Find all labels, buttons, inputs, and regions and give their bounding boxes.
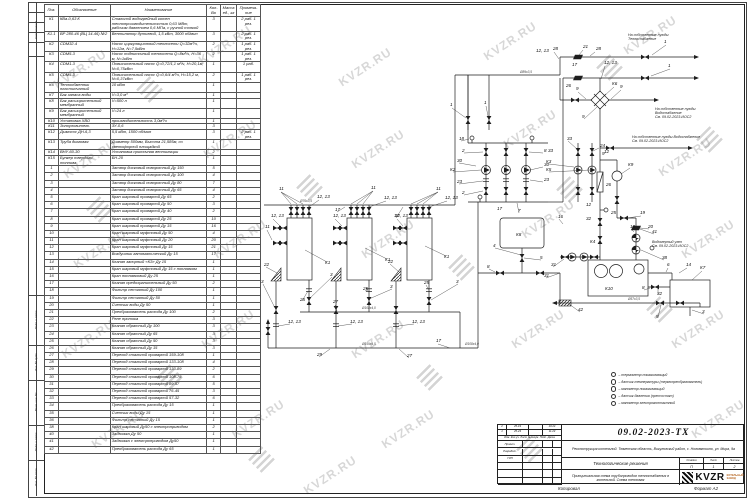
spec-cell <box>58 389 110 396</box>
spec-cell <box>221 302 237 309</box>
spec-cell <box>237 108 261 118</box>
pump-arrow-icon <box>576 168 581 173</box>
spec-cell <box>58 281 110 288</box>
spec-cell <box>237 98 261 108</box>
spec-header-cell: Поз. <box>45 5 59 17</box>
leader-line <box>281 192 297 204</box>
leader-line <box>357 191 373 204</box>
schematic-note: На собственные нуждыТеплоснабжение <box>628 33 669 41</box>
callout-label: 3 <box>330 272 333 277</box>
spec-cell <box>237 424 261 431</box>
leader-line <box>549 170 590 172</box>
spec-cell <box>221 360 237 367</box>
leader-line <box>426 285 429 290</box>
callout-label: 2 <box>461 148 465 153</box>
valve-icon <box>676 301 684 306</box>
spec-cell <box>221 252 237 259</box>
callout-label: К6 <box>612 81 618 86</box>
callout-label: 1 <box>664 39 667 44</box>
spec-row: 21Преобразователь расхода Ду 1002 <box>45 309 261 316</box>
role-empty-cell <box>542 478 552 485</box>
leader-line <box>365 248 387 259</box>
valve-icon <box>571 98 579 103</box>
callout-label: 16 <box>558 214 564 219</box>
spec-cell <box>221 156 237 166</box>
callout-label: 8 <box>642 285 645 290</box>
spec-cell <box>221 173 237 180</box>
callout-label: 25 <box>362 286 369 291</box>
spec-cell: 2 <box>207 209 221 216</box>
leader-line <box>666 268 668 272</box>
spec-cell <box>58 295 110 302</box>
kvzr-logo-text: KVZR <box>695 472 724 483</box>
spec-cell <box>221 353 237 360</box>
expansion-vessel-K9 <box>612 171 622 181</box>
legend-item-label: – манометр показывающий <box>618 387 664 391</box>
role-label <box>498 470 522 477</box>
spec-cell <box>58 331 110 338</box>
valve-icon <box>415 207 420 215</box>
spec-cell: 2 <box>207 72 221 82</box>
spec-cell: К15 <box>45 156 59 166</box>
flow-arrow-icon <box>266 319 270 324</box>
role-empty-cell <box>522 470 542 477</box>
spec-cell <box>221 31 237 41</box>
spec-row: 34Преобразователь расхода Ду 151 <box>45 403 261 410</box>
leader-line <box>417 192 438 204</box>
spec-cell <box>237 367 261 374</box>
leader-line <box>425 246 446 256</box>
role-label: ГИП <box>498 456 522 463</box>
valve-icon <box>349 207 354 215</box>
spec-cell <box>58 360 110 367</box>
leader-line <box>464 191 483 195</box>
spec-cell <box>221 202 237 209</box>
valve-icon <box>656 301 664 306</box>
role-empty-cell <box>542 470 552 477</box>
spec-cell: К1 <box>45 17 59 32</box>
drawing-sheet: СогласованоПодп. и датаИнв. № дубл.Взам.… <box>0 0 750 500</box>
spec-cell: 3 <box>207 324 221 331</box>
gauge-icon <box>530 136 534 140</box>
spec-cell <box>237 331 261 338</box>
spec-cell: 7 <box>45 209 59 216</box>
spec-cell <box>237 295 261 302</box>
callout-label: 9 <box>602 151 605 156</box>
spec-cell: 1 <box>207 439 221 446</box>
leader-line <box>641 250 664 260</box>
schematic-note: На собственные нужды ВодоснабжениеСм. 09… <box>632 135 700 143</box>
spec-cell <box>237 156 261 166</box>
boiler-K1 <box>287 218 312 280</box>
leader-line <box>549 164 574 167</box>
spec-cell <box>237 173 261 180</box>
spec-cell <box>58 266 110 273</box>
callout-label: 12, 13 <box>536 48 549 53</box>
valve-icon <box>641 55 649 60</box>
schematic-note: На собственные нуждыВодоснабжениеСм. 09.… <box>655 107 696 119</box>
legend-item: – датчик давления (прессостат) <box>611 394 702 399</box>
water-meter-icon <box>559 300 571 306</box>
valve-icon <box>409 207 414 215</box>
leader-line <box>263 284 274 306</box>
spec-cell <box>58 374 110 381</box>
callout-label: 5 <box>540 255 543 260</box>
spec-cell: К6 <box>45 82 59 92</box>
spec-header-cell: Примеча- ние <box>237 5 261 17</box>
spec-cell: 3 <box>207 130 221 140</box>
spec-cell <box>58 223 110 230</box>
spec-cell: К2 <box>45 41 59 51</box>
callout-label: 18 <box>459 136 465 141</box>
spec-row: 38Кран шаровый Ду50 с электроприводом2 <box>45 424 261 431</box>
rev-num: 2 <box>498 425 506 428</box>
spec-cell <box>221 266 237 273</box>
spec-cell <box>221 230 237 237</box>
spec-cell: Задвижка с электроприводом Ду50 <box>110 439 206 446</box>
spec-row: К6Теплообменник пластинчатый10 кВт1 <box>45 82 261 92</box>
callout-label: 24 <box>599 143 606 148</box>
spec-cell <box>221 417 237 424</box>
spec-row: К5CDM5-3Повысительный насос Q=0,6/4 м³/ч… <box>45 72 261 82</box>
spec-cell <box>58 410 110 417</box>
kvzr-logo-subtext: КОТЕЛЬНЫЙЗАВОД <box>727 475 743 481</box>
spec-cell <box>237 389 261 396</box>
callout-label: 9 <box>620 84 623 89</box>
spec-cell <box>221 108 237 118</box>
spec-cell: 41 <box>45 439 59 446</box>
leader-line <box>652 45 666 55</box>
spec-cell <box>237 374 261 381</box>
pipe-dim-label: Ø108х4,0 <box>464 342 479 346</box>
fan-icon <box>391 268 401 281</box>
spec-cell <box>221 187 237 194</box>
format-label: Формат А2 <box>694 486 718 491</box>
leader-line <box>363 191 373 204</box>
leader-line <box>273 219 280 226</box>
callout-label: 12 <box>604 149 610 154</box>
valve-icon <box>274 306 279 314</box>
spec-cell <box>237 223 261 230</box>
callout-label: К7 <box>700 265 706 270</box>
callout-label: 3 <box>456 279 459 284</box>
role-empty-cell <box>552 456 561 463</box>
spec-cell <box>58 353 110 360</box>
spec-cell: К13 <box>45 140 59 150</box>
leader-line <box>309 277 332 299</box>
callout-label: 17 <box>436 338 442 343</box>
water-treatment-K10 <box>588 260 648 296</box>
leader-line <box>578 92 586 99</box>
valve-icon <box>524 148 529 156</box>
pump-arrow-icon <box>582 255 587 260</box>
spec-cell <box>237 281 261 288</box>
callout-label: 11 <box>279 186 284 191</box>
leader-line <box>267 230 272 240</box>
callout-label: 12, 13 <box>333 213 346 218</box>
leader-line <box>495 248 521 255</box>
spec-cell <box>58 345 110 352</box>
spec-cell <box>237 345 261 352</box>
role-empty-cell <box>522 456 542 463</box>
spec-cell: 1 <box>207 140 221 150</box>
spec-cell: К9 <box>45 108 59 118</box>
spec-cell <box>237 417 261 424</box>
leader-line <box>390 264 399 272</box>
spec-cell <box>58 367 110 374</box>
spec-cell <box>221 98 237 108</box>
leader-line <box>486 106 488 116</box>
callout-label: 3 <box>390 284 393 289</box>
spec-cell: 1 раб. <box>237 62 261 72</box>
valve-icon <box>421 207 426 215</box>
spec-row: 7Кран шаровый приварной Ду 402 <box>45 209 261 216</box>
valve-icon <box>590 255 598 260</box>
leader-line <box>644 288 650 290</box>
spec-cell <box>221 432 237 439</box>
spec-cell <box>237 187 261 194</box>
legend-item-label: – датчик давления (прессостат) <box>618 394 673 398</box>
spec-cell <box>221 324 237 331</box>
role-label: Проект. <box>498 441 522 448</box>
rev-date: 10.24 <box>543 425 561 428</box>
leader-line <box>530 180 543 182</box>
spec-cell <box>221 295 237 302</box>
spec-cell <box>237 82 261 92</box>
rev-doc: 25-19 <box>507 425 528 428</box>
spec-cell <box>58 173 110 180</box>
spec-cell <box>58 274 110 281</box>
valve-icon <box>427 297 432 305</box>
callout-label: 30 <box>457 158 463 163</box>
callout-label: К9 <box>628 162 634 167</box>
role-empty-cell <box>522 463 542 470</box>
spec-cell: Бак расширительный мембранный <box>58 108 110 118</box>
callout-label: 30 <box>544 162 550 167</box>
flow-arrow-icon <box>694 76 699 80</box>
spec-cell <box>58 180 110 187</box>
valve-icon <box>487 116 492 124</box>
legend-item: – манометр электроконтактный <box>611 401 702 406</box>
spec-cell <box>237 140 261 150</box>
spec-cell <box>237 238 261 245</box>
spec-cell: К5 <box>45 72 59 82</box>
boiler-K1 <box>407 218 432 280</box>
callout-label: 41 <box>652 229 658 234</box>
role-empty-cell <box>522 478 542 485</box>
spec-cell: 1 <box>207 82 221 92</box>
spec-cell <box>221 439 237 446</box>
role-empty-cell <box>522 441 542 448</box>
valve-icon <box>484 148 489 156</box>
spec-cell <box>237 245 261 252</box>
instrument-legend: – термометр показывающий– датчик темпера… <box>611 372 702 408</box>
spec-cell: Насос циркуляционный теплосети Q=32м³/ч,… <box>110 41 206 51</box>
callout-label: 12, 13 <box>288 319 301 324</box>
spec-cell <box>58 238 110 245</box>
spec-cell <box>58 396 110 403</box>
callout-label: 14 <box>686 262 692 267</box>
leader-line <box>579 50 583 55</box>
spec-cell: 3 <box>207 31 221 41</box>
leader-line <box>305 250 327 262</box>
callout-label: 5 <box>656 314 659 319</box>
company-logo: KVZR КОТЕЛЬНЫЙЗАВОД <box>680 470 745 485</box>
spec-cell <box>221 62 237 72</box>
spec-cell: V=24 л <box>110 108 206 118</box>
spec-cell <box>221 166 237 173</box>
filter-tank-icon <box>610 265 623 278</box>
spec-cell <box>221 396 237 403</box>
spec-cell <box>237 202 261 209</box>
specification-table: Поз.ОбозначениеНаименованиеКол-ВоМасса е… <box>44 4 261 454</box>
spec-cell <box>237 446 261 453</box>
callout-label: 32 <box>586 216 592 221</box>
spec-cell <box>237 180 261 187</box>
spec-header-cell: Кол-Во <box>207 5 221 17</box>
leader-line <box>568 141 577 149</box>
spec-cell <box>237 439 261 446</box>
valve-icon <box>504 187 509 195</box>
spec-cell <box>221 194 237 201</box>
leader-line <box>411 192 438 204</box>
leader-line <box>464 152 483 153</box>
leader-line <box>397 219 403 226</box>
spec-row: К13Труба дымоваяДиаметр 500мм, Высота 21… <box>45 140 261 150</box>
callout-label: 7 <box>518 208 521 213</box>
spec-cell: К3 <box>45 52 59 62</box>
copied-label: Копировал <box>558 486 580 491</box>
callout-label: 11 <box>436 186 441 191</box>
spec-cell: КВа-0,63 К <box>58 17 110 32</box>
flow-arrow-icon <box>694 55 699 59</box>
callout-label: 25 <box>423 280 430 285</box>
callout-label: 33 <box>567 136 573 141</box>
valve-icon <box>651 285 659 290</box>
spec-cell <box>237 194 261 201</box>
spec-cell: 1 раб. 1 рез. <box>237 72 261 82</box>
callout-label: 12, 13 <box>604 60 617 65</box>
role-empty-cell <box>552 449 561 456</box>
callout-label: 19 <box>640 210 646 215</box>
spec-cell: 10 кВт <box>110 82 206 92</box>
document-number: 09.02-2023-ТХ <box>561 425 745 441</box>
spec-cell: CDM1-3 <box>58 62 110 72</box>
spec-cell <box>221 82 237 92</box>
spec-cell <box>221 180 237 187</box>
valve-icon <box>504 148 509 156</box>
rev-date: 11.23 <box>543 430 561 433</box>
role-empty-cell <box>522 449 542 456</box>
leader-line <box>281 192 291 204</box>
role-empty-cell <box>542 456 552 463</box>
callout-label: 26 <box>605 182 612 187</box>
fan-icon <box>271 268 281 281</box>
spec-cell: Дымосос ДН-6,3 <box>58 130 110 140</box>
spec-cell <box>221 381 237 388</box>
spec-cell <box>58 216 110 223</box>
spec-cell: Труба дымовая <box>58 140 110 150</box>
role-label <box>498 463 522 470</box>
spec-cell: 1 <box>207 156 221 166</box>
valve-icon <box>289 207 294 215</box>
leader-line <box>554 52 559 59</box>
spec-cell <box>58 381 110 388</box>
project-name: Реконструкция котельной. Тюменская облас… <box>561 441 745 458</box>
valve-icon <box>576 187 581 195</box>
schematic-note: Водомерный узелСм. 09.02-2023-ИОС2 <box>652 240 688 248</box>
spec-cell <box>237 410 261 417</box>
callout-label: 25 <box>299 297 306 302</box>
callout-label: 27 <box>406 353 413 358</box>
callout-label: 28 <box>552 46 559 51</box>
callout-label: 12, 13 <box>445 195 458 200</box>
spec-cell <box>221 403 237 410</box>
spec-cell <box>237 353 261 360</box>
spec-row: К1.1ВР 280-46 (ВЦ 14-46) №2Вентилятор ду… <box>45 31 261 41</box>
callout-label: 3 <box>702 309 705 314</box>
spec-cell <box>221 288 237 295</box>
callout-label: 12, 13 <box>395 213 408 218</box>
instrument-circle-icon <box>611 394 616 399</box>
spec-row: К1КВа-0,63 КСтальной водогрейный котел т… <box>45 17 261 32</box>
spec-cell: CDM32-4 <box>58 41 110 51</box>
spec-cell <box>58 302 110 309</box>
spec-cell: Повысительный насос Q=0,72/1,1 м³/ч, Н=2… <box>110 62 206 72</box>
valve-icon <box>598 236 603 244</box>
callout-label: 3 <box>261 279 264 284</box>
spec-cell <box>237 338 261 345</box>
spec-header-cell: Обозначение <box>58 5 110 17</box>
spec-cell: БН-20 <box>110 156 206 166</box>
spec-cell <box>221 223 237 230</box>
callout-label: 22 <box>263 262 270 267</box>
spec-cell <box>237 288 261 295</box>
callout-label: 9 <box>576 86 579 91</box>
leader-line <box>489 269 495 272</box>
spec-row: К9Бак расширительный мембранныйV=24 л1 <box>45 108 261 118</box>
spec-cell: Бункер твердого топлива <box>58 156 110 166</box>
legend-item-label: – термометр показывающий <box>618 373 667 377</box>
spec-row: 42Преобразователь расхода Ду 651 <box>45 446 261 453</box>
pump-arrow-icon <box>484 167 490 172</box>
callout-label: К5 <box>546 167 552 172</box>
valve-icon <box>484 187 489 195</box>
leader-line <box>529 152 543 153</box>
leader-line <box>351 191 373 204</box>
spec-cell <box>58 288 110 295</box>
callout-label: 38 <box>662 255 668 260</box>
role-empty-cell <box>552 441 561 448</box>
spec-cell: 2 раб. 1 рез. <box>237 130 261 140</box>
leader-line <box>438 344 450 348</box>
spec-cell: К4 <box>45 62 59 72</box>
valve-icon <box>590 187 595 195</box>
leader-line <box>524 258 541 260</box>
spec-cell: CDM5-3 <box>58 52 110 62</box>
instrument-circle-icon <box>611 401 616 406</box>
pump-arrow-icon <box>524 167 530 172</box>
callout-label: 12 <box>586 202 592 207</box>
spec-cell <box>58 317 110 324</box>
spec-header-cell: Наименование <box>110 5 206 17</box>
spec-cell: К12 <box>45 130 59 140</box>
leader-line <box>266 267 277 273</box>
spec-cell: 2 раб. 1 рез. <box>237 31 261 41</box>
instrument-circle-icon <box>611 386 616 391</box>
callout-label: 8 <box>487 264 490 269</box>
spec-cell: V=500 л <box>110 98 206 108</box>
